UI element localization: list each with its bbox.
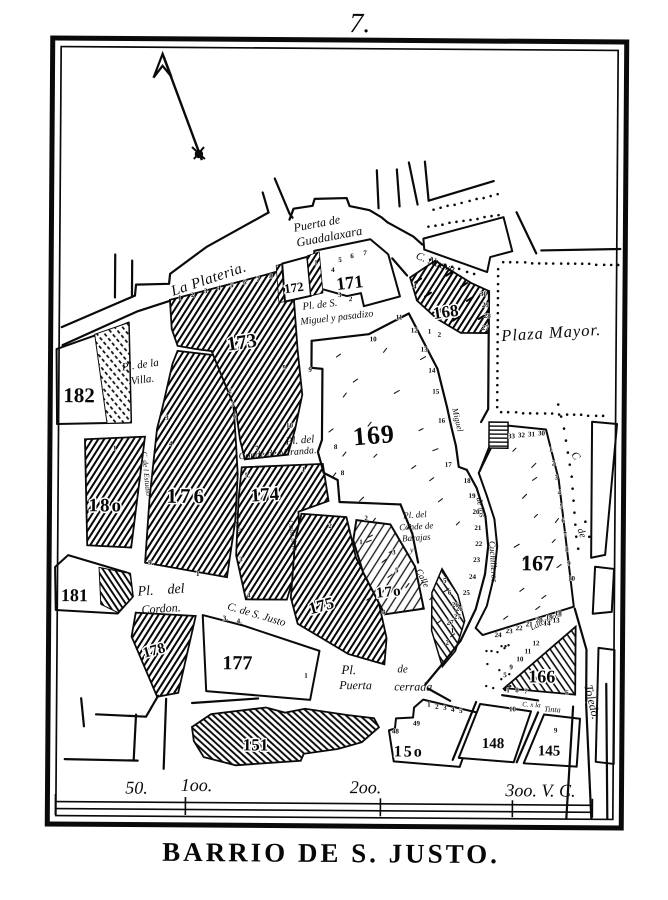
svg-text:7: 7	[256, 275, 260, 283]
svg-text:5: 5	[503, 671, 507, 679]
svg-text:5: 5	[443, 577, 447, 585]
svg-text:6: 6	[350, 252, 354, 260]
svg-text:145: 145	[538, 743, 561, 759]
svg-text:2oo.: 2oo.	[350, 777, 382, 797]
svg-text:9: 9	[567, 560, 571, 568]
svg-text:7: 7	[363, 249, 367, 257]
svg-text:1: 1	[178, 294, 182, 302]
svg-text:20: 20	[536, 616, 544, 624]
svg-text:1: 1	[314, 259, 318, 267]
svg-text:4: 4	[331, 266, 335, 274]
svg-text:6: 6	[565, 689, 569, 697]
svg-text:Pl.: Pl.	[340, 662, 356, 677]
svg-text:23: 23	[506, 627, 514, 635]
svg-text:11: 11	[524, 647, 531, 655]
svg-text:5: 5	[230, 281, 234, 289]
svg-text:8: 8	[515, 686, 519, 694]
svg-text:4: 4	[247, 591, 251, 599]
svg-text:6: 6	[448, 589, 452, 597]
svg-text:2: 2	[552, 460, 556, 468]
svg-text:33: 33	[508, 432, 516, 440]
svg-text:7.: 7.	[349, 8, 370, 39]
svg-text:8: 8	[269, 273, 273, 281]
svg-text:168: 168	[432, 301, 460, 323]
svg-text:182: 182	[63, 383, 95, 407]
svg-text:1oo.: 1oo.	[181, 775, 213, 795]
svg-text:21: 21	[474, 524, 482, 532]
svg-text:Cordon.: Cordon.	[141, 600, 181, 616]
svg-text:9.: 9.	[148, 559, 154, 567]
svg-text:10: 10	[568, 575, 576, 583]
svg-text:22: 22	[475, 540, 483, 548]
svg-text:9: 9	[282, 364, 286, 372]
svg-text:1: 1	[196, 570, 200, 578]
svg-text:10: 10	[370, 335, 378, 343]
svg-text:4: 4	[382, 608, 386, 616]
svg-text:C. dela: C. dela	[233, 513, 242, 534]
svg-text:3.: 3.	[223, 614, 229, 622]
svg-text:4: 4	[169, 440, 173, 448]
svg-text:de: de	[397, 663, 408, 675]
svg-text:7: 7	[524, 687, 528, 695]
svg-text:26: 26	[452, 601, 460, 609]
svg-text:6: 6	[233, 412, 237, 420]
svg-text:12: 12	[411, 327, 419, 335]
svg-text:27: 27	[482, 324, 490, 332]
svg-text:151: 151	[243, 735, 269, 754]
svg-text:7: 7	[255, 444, 259, 452]
svg-text:2: 2	[435, 703, 439, 711]
svg-text:24: 24	[469, 573, 477, 581]
svg-text:1: 1	[506, 686, 510, 694]
svg-text:174: 174	[250, 484, 280, 507]
svg-text:Pl. del: Pl. del	[402, 509, 428, 521]
svg-text:11: 11	[396, 313, 403, 321]
svg-text:14: 14	[544, 619, 552, 627]
svg-text:23: 23	[473, 556, 481, 564]
svg-text:30: 30	[538, 429, 546, 437]
svg-text:16: 16	[438, 417, 446, 425]
svg-text:172: 172	[283, 279, 304, 296]
svg-text:6: 6	[561, 517, 565, 525]
svg-text:17: 17	[445, 461, 453, 469]
svg-text:1: 1	[451, 627, 455, 635]
svg-text:2: 2	[228, 387, 232, 395]
svg-text:50.: 50.	[125, 778, 148, 798]
svg-text:1: 1	[359, 538, 363, 546]
svg-text:5.: 5.	[245, 471, 251, 479]
svg-text:173: 173	[225, 330, 258, 356]
svg-text:21: 21	[526, 620, 534, 628]
svg-text:3: 3	[231, 400, 235, 408]
svg-text:2: 2	[191, 291, 195, 299]
svg-text:13: 13	[421, 346, 429, 354]
svg-text:5: 5	[338, 256, 342, 264]
svg-text:3: 3	[165, 414, 169, 422]
svg-text:3: 3	[443, 704, 447, 712]
svg-text:4: 4	[558, 489, 562, 497]
svg-text:22: 22	[516, 624, 524, 632]
svg-text:3: 3	[239, 555, 243, 563]
svg-text:cerrada: cerrada	[394, 679, 432, 693]
svg-text:C. x la: C. x la	[522, 700, 541, 709]
svg-text:1: 1	[302, 466, 306, 474]
svg-text:3: 3	[392, 548, 396, 556]
svg-text:9: 9	[308, 366, 312, 374]
svg-text:30: 30	[480, 290, 488, 298]
svg-text:4: 4	[451, 706, 455, 714]
svg-text:18: 18	[464, 477, 472, 485]
svg-text:24: 24	[495, 631, 503, 639]
svg-text:8: 8	[334, 443, 338, 451]
svg-text:2: 2	[349, 295, 353, 303]
svg-text:8: 8	[341, 469, 345, 477]
svg-text:25: 25	[463, 589, 471, 597]
svg-text:4: 4	[413, 283, 417, 291]
svg-text:3: 3	[204, 287, 208, 295]
svg-text:14: 14	[428, 367, 436, 375]
svg-text:31: 31	[528, 430, 536, 438]
svg-text:10: 10	[516, 655, 524, 663]
svg-text:Tinta: Tinta	[544, 704, 561, 714]
svg-text:169: 169	[352, 419, 396, 451]
svg-text:8: 8	[565, 546, 569, 554]
svg-text:177: 177	[222, 652, 252, 674]
svg-text:Puerta: Puerta	[338, 678, 372, 692]
svg-text:167: 167	[521, 550, 554, 575]
svg-text:1: 1	[428, 328, 432, 336]
svg-text:48: 48	[392, 727, 400, 735]
svg-text:32: 32	[518, 431, 526, 439]
svg-text:9: 9	[509, 663, 513, 671]
svg-text:1: 1	[113, 444, 117, 452]
svg-text:17o: 17o	[375, 583, 402, 601]
svg-text:18o: 18o	[88, 495, 123, 516]
svg-text:3: 3	[338, 291, 342, 299]
svg-text:6: 6	[243, 278, 247, 286]
svg-text:5: 5	[459, 707, 463, 715]
svg-text:10: 10	[509, 705, 517, 713]
svg-text:27: 27	[454, 613, 462, 621]
svg-text:3oo. V. C.: 3oo. V. C.	[504, 780, 575, 800]
svg-text:1: 1	[304, 672, 308, 680]
svg-text:5: 5	[559, 503, 563, 511]
svg-text:Pl. del: Pl. del	[136, 582, 185, 600]
svg-text:49: 49	[413, 720, 421, 728]
svg-text:181: 181	[61, 585, 88, 605]
svg-text:29: 29	[482, 301, 490, 309]
svg-text:19: 19	[469, 492, 477, 500]
svg-text:5: 5	[395, 566, 399, 574]
svg-text:28: 28	[484, 312, 492, 320]
svg-text:Barajas: Barajas	[402, 532, 432, 544]
svg-text:3: 3	[555, 474, 559, 482]
svg-text:13: 13	[553, 617, 561, 625]
svg-text:2: 2	[438, 331, 442, 339]
svg-text:2: 2	[446, 639, 450, 647]
svg-text:2: 2	[364, 514, 368, 522]
svg-text:4: 4	[217, 284, 221, 292]
svg-text:15: 15	[432, 388, 440, 396]
svg-text:1: 1	[549, 445, 553, 453]
svg-text:9: 9	[554, 727, 558, 735]
svg-text:2: 2	[328, 522, 332, 530]
svg-text:4.: 4.	[237, 617, 243, 625]
svg-text:10: 10	[286, 422, 294, 430]
svg-text:148: 148	[482, 736, 505, 752]
svg-text:1: 1	[427, 701, 431, 709]
svg-text:7: 7	[563, 531, 567, 539]
svg-text:176: 176	[166, 484, 207, 508]
svg-text:BARRIO DE S. JUSTO.: BARRIO DE S. JUSTO.	[162, 837, 500, 869]
svg-text:20: 20	[472, 508, 480, 516]
svg-text:12: 12	[533, 639, 541, 647]
svg-text:166: 166	[528, 666, 555, 686]
svg-text:15o: 15o	[394, 743, 424, 760]
